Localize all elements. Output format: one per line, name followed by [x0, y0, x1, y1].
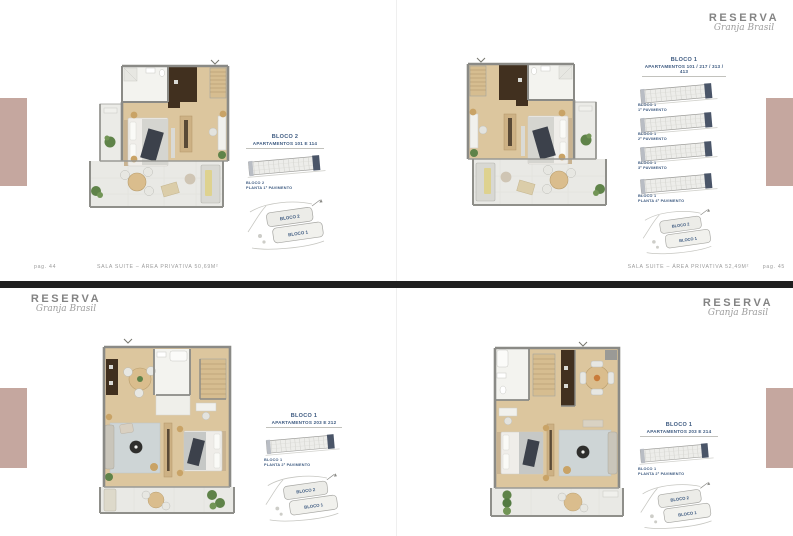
caption-line: PLANTA 1º PAVIMENTO	[246, 186, 292, 191]
key-plan-caption: BLOCO 1 PLANTA 2º PAVIMENTO	[264, 458, 310, 468]
plan-label-bottom-right: BLOCO 1 APARTAMENTOS 203 E 214	[640, 422, 718, 437]
key-elevation	[244, 154, 328, 180]
key-plan-caption: BLOCO 1 3º PAVIMENTO	[638, 161, 667, 171]
key-plan-caption: BLOCO 1 PLANTA 4º PAVIMENTO	[638, 194, 684, 204]
brand-tagline: Granja Brasil	[694, 308, 782, 318]
page-divider	[396, 288, 397, 536]
brand-tagline: Granja Brasil	[700, 23, 788, 33]
footer-area-text: SALA SUITE – ÁREA PRIVATIVA 52,49M²	[628, 264, 749, 270]
accent-strip-right	[766, 388, 793, 468]
caption-line: 3º PAVIMENTO	[638, 166, 667, 171]
plan-label-apartments: APARTAMENTOS 101 / 217 / 313 / 413	[642, 64, 726, 74]
site-plan	[638, 479, 718, 533]
footer-page-number: pag. 44	[34, 264, 56, 270]
site-plan	[246, 196, 330, 254]
page-gap	[0, 281, 793, 288]
floor-plan-bloco1-apt203-214	[487, 340, 627, 524]
brand-tagline: Granja Brasil	[22, 304, 110, 314]
plan-label-apartments: APARTAMENTOS 203 E 212	[266, 420, 342, 425]
key-plan-caption: BLOCO 2 PLANTA 1º PAVIMENTO	[246, 181, 292, 191]
plan-label-top-right: BLOCO 1 APARTAMENTOS 101 / 217 / 313 / 4…	[642, 57, 726, 77]
key-plan-caption: BLOCO 1 PLANTA 2º PAVIMENTO	[638, 467, 684, 477]
accent-strip-left	[0, 98, 27, 186]
page-divider	[396, 0, 397, 282]
site-plan	[640, 206, 718, 258]
brand-logo: RESERVA Granja Brasil	[22, 293, 110, 314]
plan-label-top-left: BLOCO 2 APARTAMENTOS 101 E 114	[246, 134, 324, 149]
accent-strip-right	[766, 98, 793, 186]
plan-label-apartments: APARTAMENTOS 101 E 114	[246, 141, 324, 146]
caption-line: PLANTA 4º PAVIMENTO	[638, 199, 684, 204]
footer-area-text: SALA SUITE – ÁREA PRIVATIVA 50,69M²	[97, 264, 218, 270]
accent-strip-left	[0, 388, 27, 468]
brand-logo: RESERVA Granja Brasil	[694, 297, 782, 318]
plan-label-block: BLOCO 1	[642, 57, 726, 63]
key-elevation	[636, 442, 716, 467]
site-plan	[264, 470, 344, 526]
plan-label-bottom-left: BLOCO 1 APARTAMENTOS 203 E 212	[266, 413, 342, 428]
floor-plan-bloco2-apt101	[84, 58, 232, 234]
brand-logo: RESERVA Granja Brasil	[700, 12, 788, 33]
key-elevation	[262, 433, 342, 458]
plan-label-apartments: APARTAMENTOS 203 E 214	[640, 429, 718, 434]
floor-plan-bloco1-apt203-212	[94, 337, 240, 523]
plan-label-block: BLOCO 1	[266, 413, 342, 419]
plan-label-block: BLOCO 1	[640, 422, 718, 428]
plan-label-block: BLOCO 2	[246, 134, 324, 140]
brochure-spread: BLOCO 2 BLOCO 1 RESERVA Granja Brasil	[0, 0, 793, 536]
caption-line: PLANTA 2º PAVIMENTO	[638, 472, 684, 477]
floor-plan-bloco1-apt101	[464, 56, 612, 232]
footer-page-number: pag. 45	[763, 264, 785, 270]
caption-line: PLANTA 2º PAVIMENTO	[264, 463, 310, 468]
